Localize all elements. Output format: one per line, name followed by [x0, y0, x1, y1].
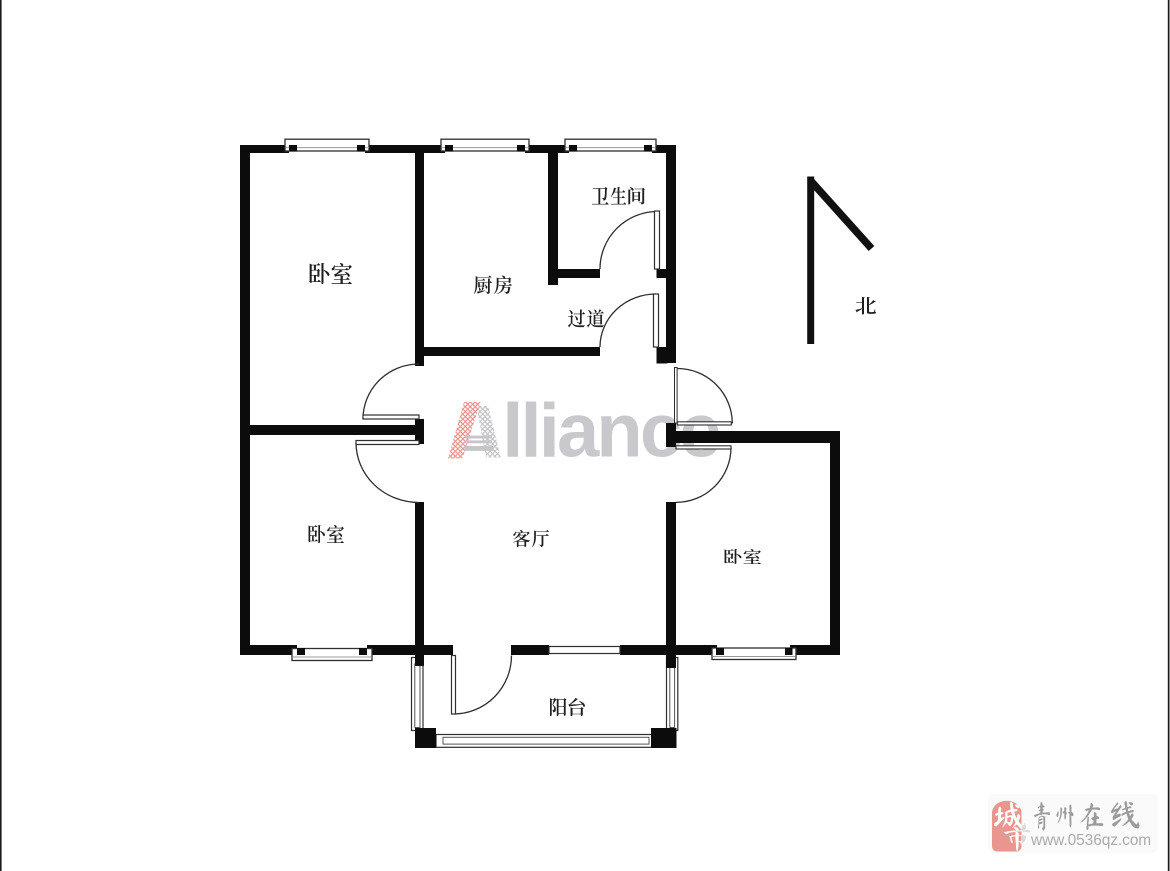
- svg-text:www.0536qz.com: www.0536qz.com: [1030, 832, 1151, 849]
